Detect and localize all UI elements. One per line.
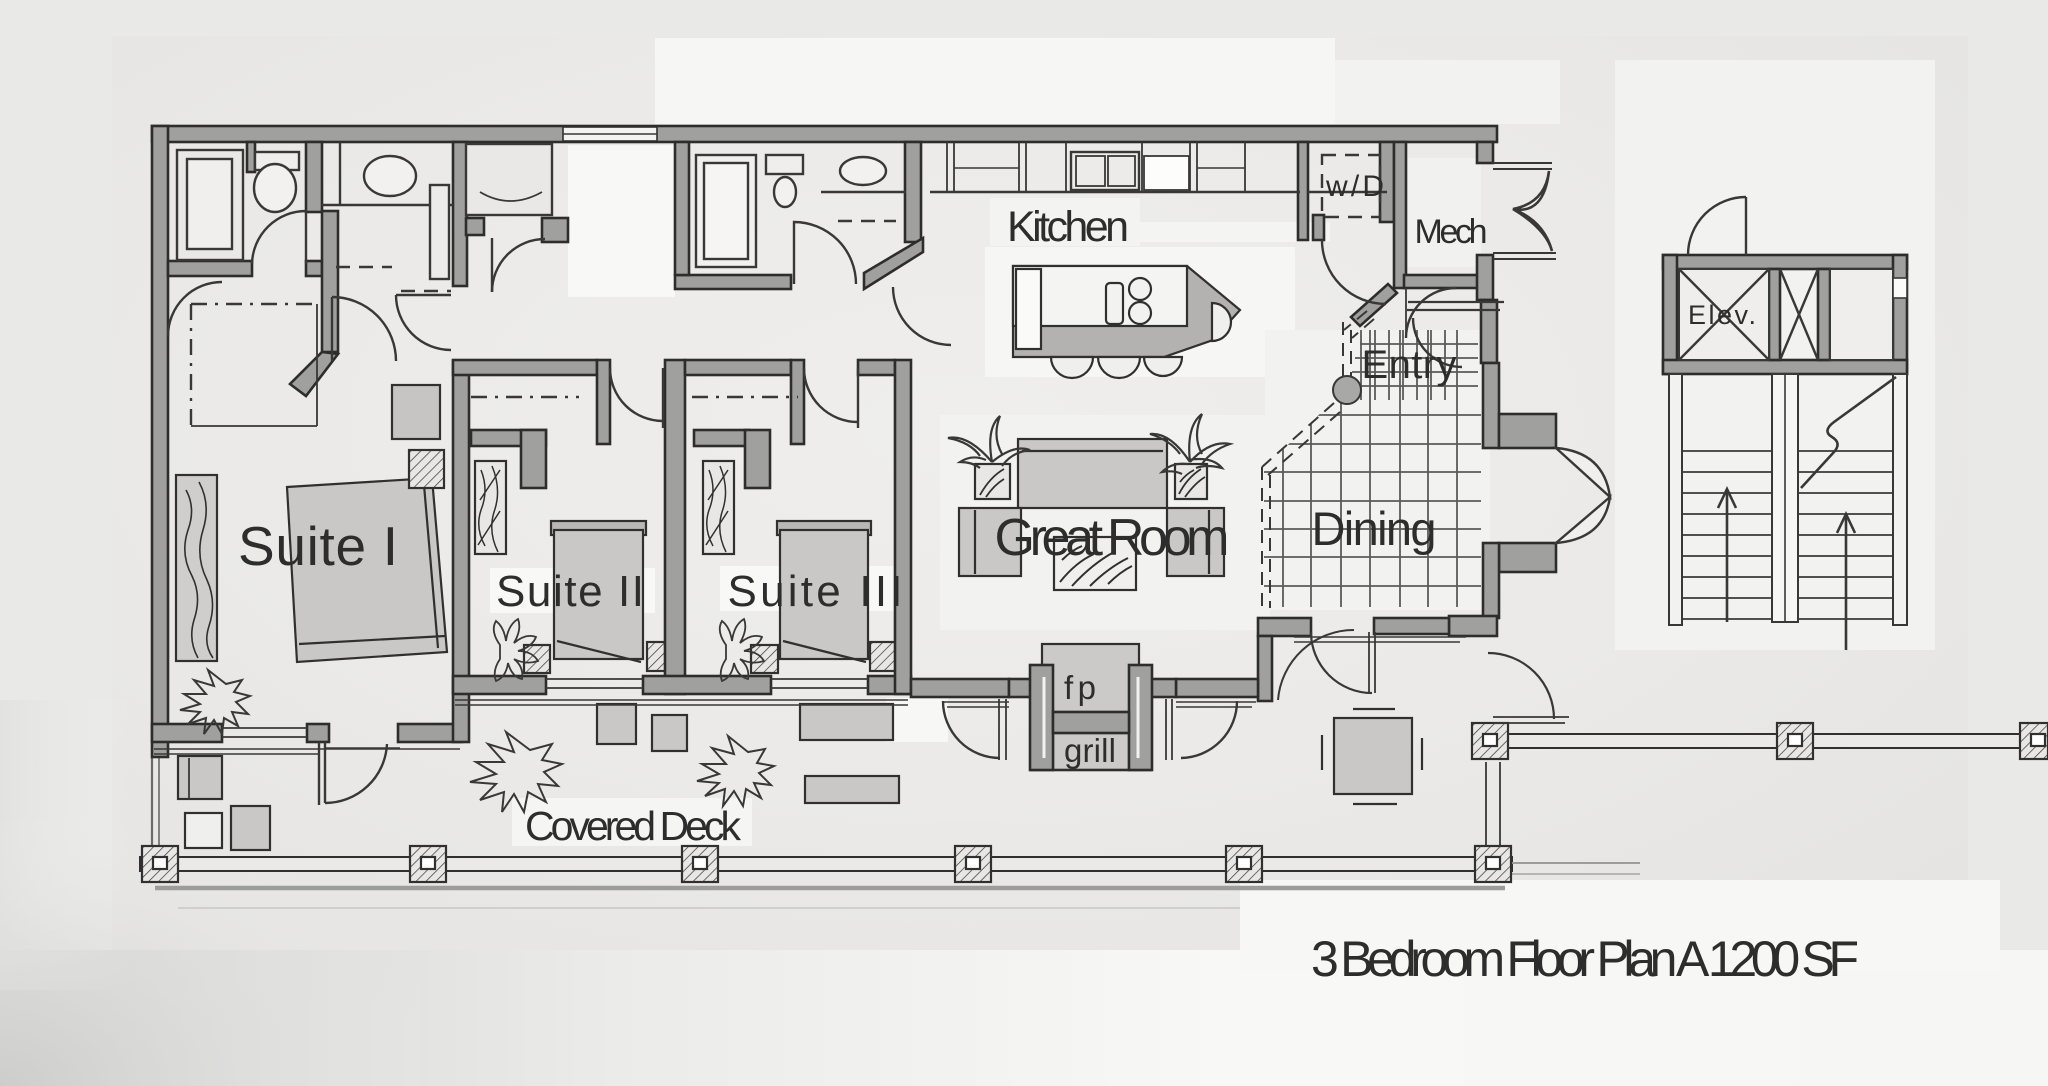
svg-text:Covered Deck: Covered Deck — [525, 803, 742, 849]
svg-text:Elev.: Elev. — [1688, 300, 1756, 330]
svg-text:3 Bedroom Floor Plan A 1200 SF: 3 Bedroom Floor Plan A 1200 SF — [1311, 931, 1859, 987]
svg-text:Mech: Mech — [1415, 213, 1488, 251]
svg-text:fp: fp — [1064, 669, 1096, 706]
svg-text:Entry: Entry — [1362, 343, 1457, 387]
svg-text:Kitchen: Kitchen — [1007, 203, 1129, 251]
svg-text:Great Room: Great Room — [995, 509, 1230, 567]
svg-text:w/D: w/D — [1325, 170, 1384, 203]
svg-text:Suite I: Suite I — [238, 515, 398, 577]
svg-text:grill: grill — [1064, 732, 1116, 769]
svg-text:Dining: Dining — [1312, 502, 1437, 555]
svg-text:Suite II: Suite II — [496, 567, 644, 616]
